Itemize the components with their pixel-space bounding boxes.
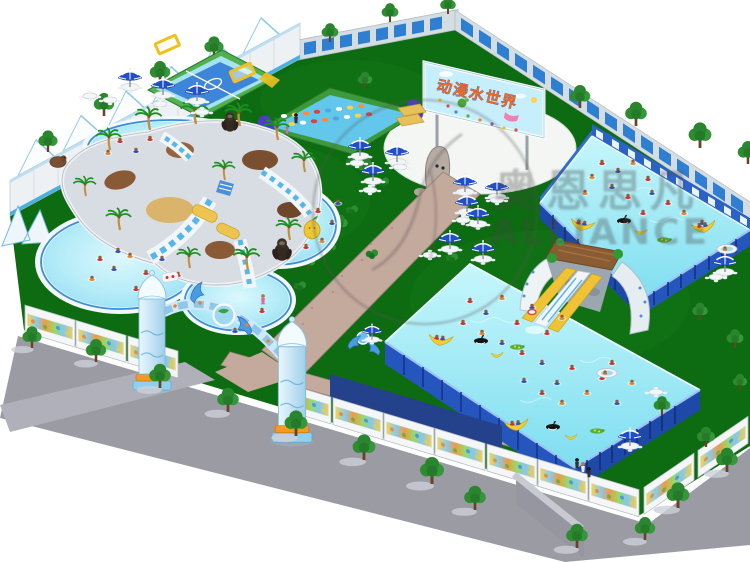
watermark-text-cjk: 奥恩思凡 (494, 166, 702, 217)
boat-float (717, 245, 737, 254)
scene: 动漫水世界 (0, 0, 750, 562)
ring-float (528, 310, 536, 315)
waterpark-render: 动漫水世界 (0, 0, 750, 562)
arch-medallion (214, 305, 235, 326)
boat-float (597, 369, 617, 378)
watermark-text-latin: ALLIANCE (490, 212, 710, 253)
